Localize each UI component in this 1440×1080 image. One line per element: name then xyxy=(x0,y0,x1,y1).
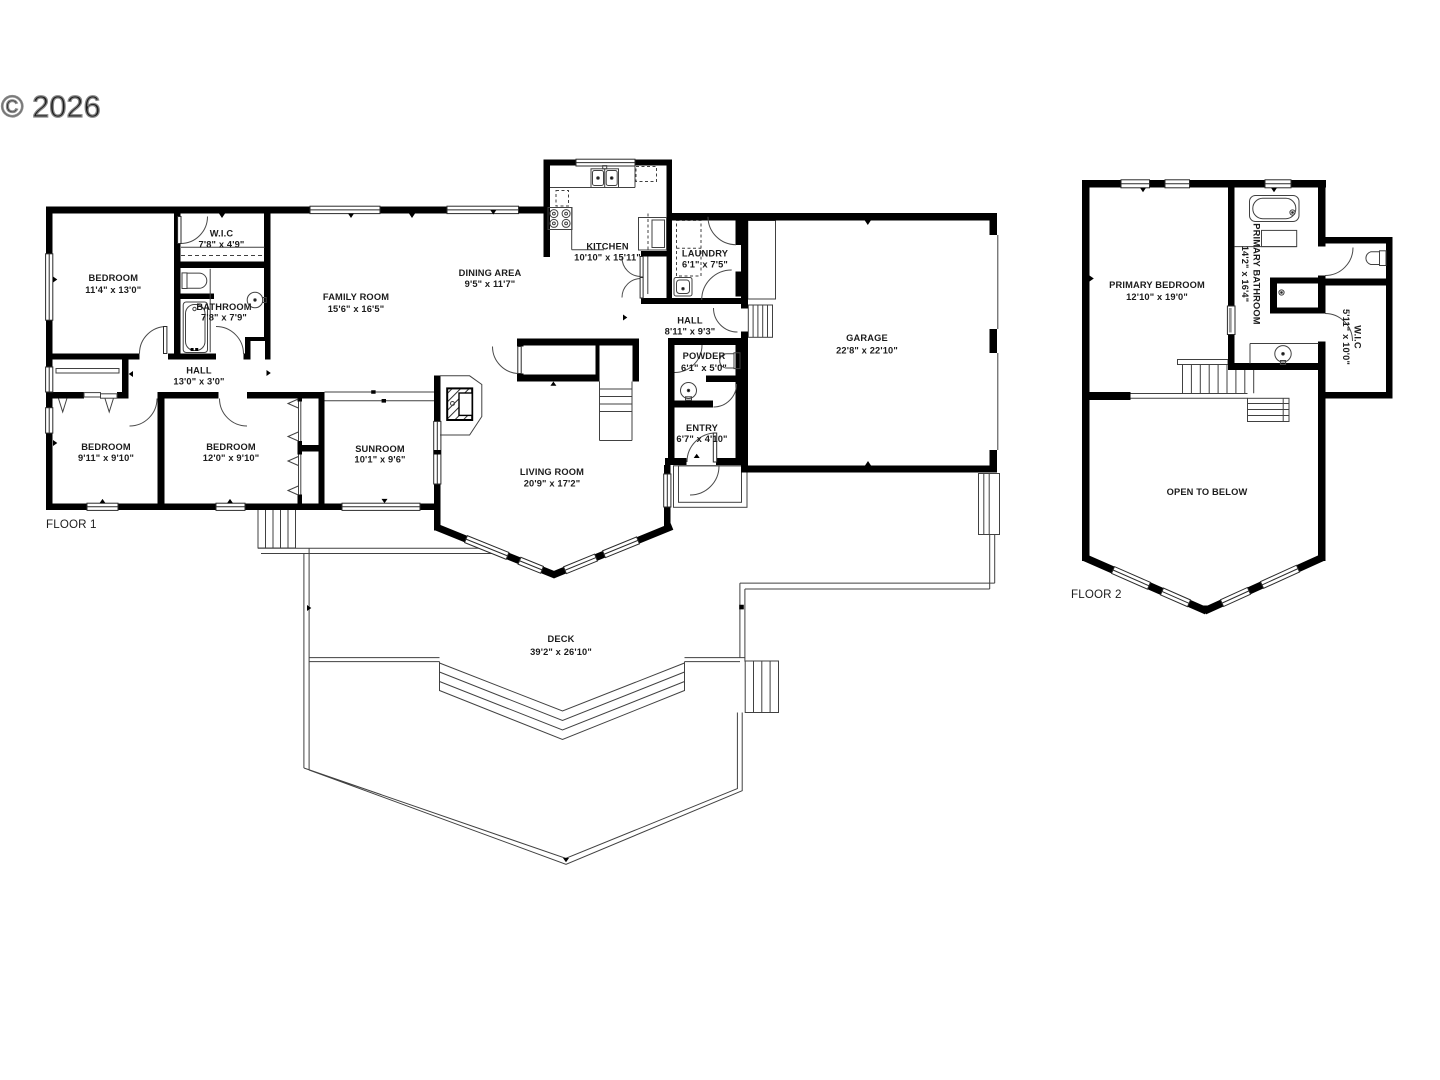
svg-text:ENTRY: ENTRY xyxy=(686,423,719,433)
svg-text:HALL: HALL xyxy=(186,366,212,376)
svg-text:9'11" x 9'10": 9'11" x 9'10" xyxy=(78,453,134,463)
svg-text:FLOOR 2: FLOOR 2 xyxy=(1071,588,1122,601)
svg-text:PRIMARY BATHROOM: PRIMARY BATHROOM xyxy=(1252,223,1262,324)
svg-text:12'0" x 9'10": 12'0" x 9'10" xyxy=(203,453,260,463)
svg-text:6'7" x 4'10": 6'7" x 4'10" xyxy=(676,434,727,444)
svg-text:HALL: HALL xyxy=(677,316,703,326)
svg-text:LIVING ROOM: LIVING ROOM xyxy=(520,467,584,477)
svg-text:BEDROOM: BEDROOM xyxy=(206,442,256,452)
svg-text:7'8" x 7'9": 7'8" x 7'9" xyxy=(201,313,247,323)
svg-text:BEDROOM: BEDROOM xyxy=(88,273,138,283)
svg-text:10'10" x 15'11": 10'10" x 15'11" xyxy=(574,253,641,263)
svg-text:6'1" x 5'0": 6'1" x 5'0" xyxy=(681,363,727,373)
svg-text:DINING AREA: DINING AREA xyxy=(459,268,522,278)
svg-text:KITCHEN: KITCHEN xyxy=(586,242,629,252)
svg-text:10'1" x 9'6": 10'1" x 9'6" xyxy=(354,455,405,465)
svg-text:11'4" x 13'0": 11'4" x 13'0" xyxy=(85,285,141,295)
svg-text:LAUNDRY: LAUNDRY xyxy=(682,249,729,259)
svg-text:13'0" x 3'0": 13'0" x 3'0" xyxy=(173,377,224,387)
svg-text:© 2026: © 2026 xyxy=(1,90,101,124)
svg-text:7'8" x 4'9": 7'8" x 4'9" xyxy=(199,240,245,250)
svg-text:5'11" x 10'0": 5'11" x 10'0" xyxy=(1341,309,1351,365)
svg-text:BATHROOM: BATHROOM xyxy=(196,302,251,312)
svg-text:DECK: DECK xyxy=(548,634,575,644)
svg-text:SUNROOM: SUNROOM xyxy=(355,444,405,454)
svg-text:OPEN TO BELOW: OPEN TO BELOW xyxy=(1167,487,1248,497)
svg-text:FLOOR 1: FLOOR 1 xyxy=(46,518,97,531)
svg-text:12'10" x 19'0": 12'10" x 19'0" xyxy=(1126,292,1188,302)
svg-text:W.I.C: W.I.C xyxy=(1353,325,1363,349)
svg-text:W.I.C: W.I.C xyxy=(210,229,234,239)
svg-text:39'2" x 26'10": 39'2" x 26'10" xyxy=(530,647,592,657)
svg-text:GARAGE: GARAGE xyxy=(846,333,888,343)
svg-text:22'8" x 22'10": 22'8" x 22'10" xyxy=(836,346,898,356)
svg-text:FAMILY ROOM: FAMILY ROOM xyxy=(323,292,389,302)
svg-text:6'1" x 7'5": 6'1" x 7'5" xyxy=(682,260,728,270)
svg-text:14'2" x 16'4": 14'2" x 16'4" xyxy=(1240,246,1250,303)
svg-text:POWDER: POWDER xyxy=(683,351,726,361)
svg-text:15'6" x 16'5": 15'6" x 16'5" xyxy=(328,304,385,314)
svg-text:8'11" x 9'3": 8'11" x 9'3" xyxy=(665,327,716,337)
svg-text:BEDROOM: BEDROOM xyxy=(81,442,131,452)
svg-text:9'5" x 11'7": 9'5" x 11'7" xyxy=(465,279,516,289)
svg-text:20'9" x 17'2": 20'9" x 17'2" xyxy=(524,479,581,489)
svg-text:PRIMARY BEDROOM: PRIMARY BEDROOM xyxy=(1109,280,1205,290)
